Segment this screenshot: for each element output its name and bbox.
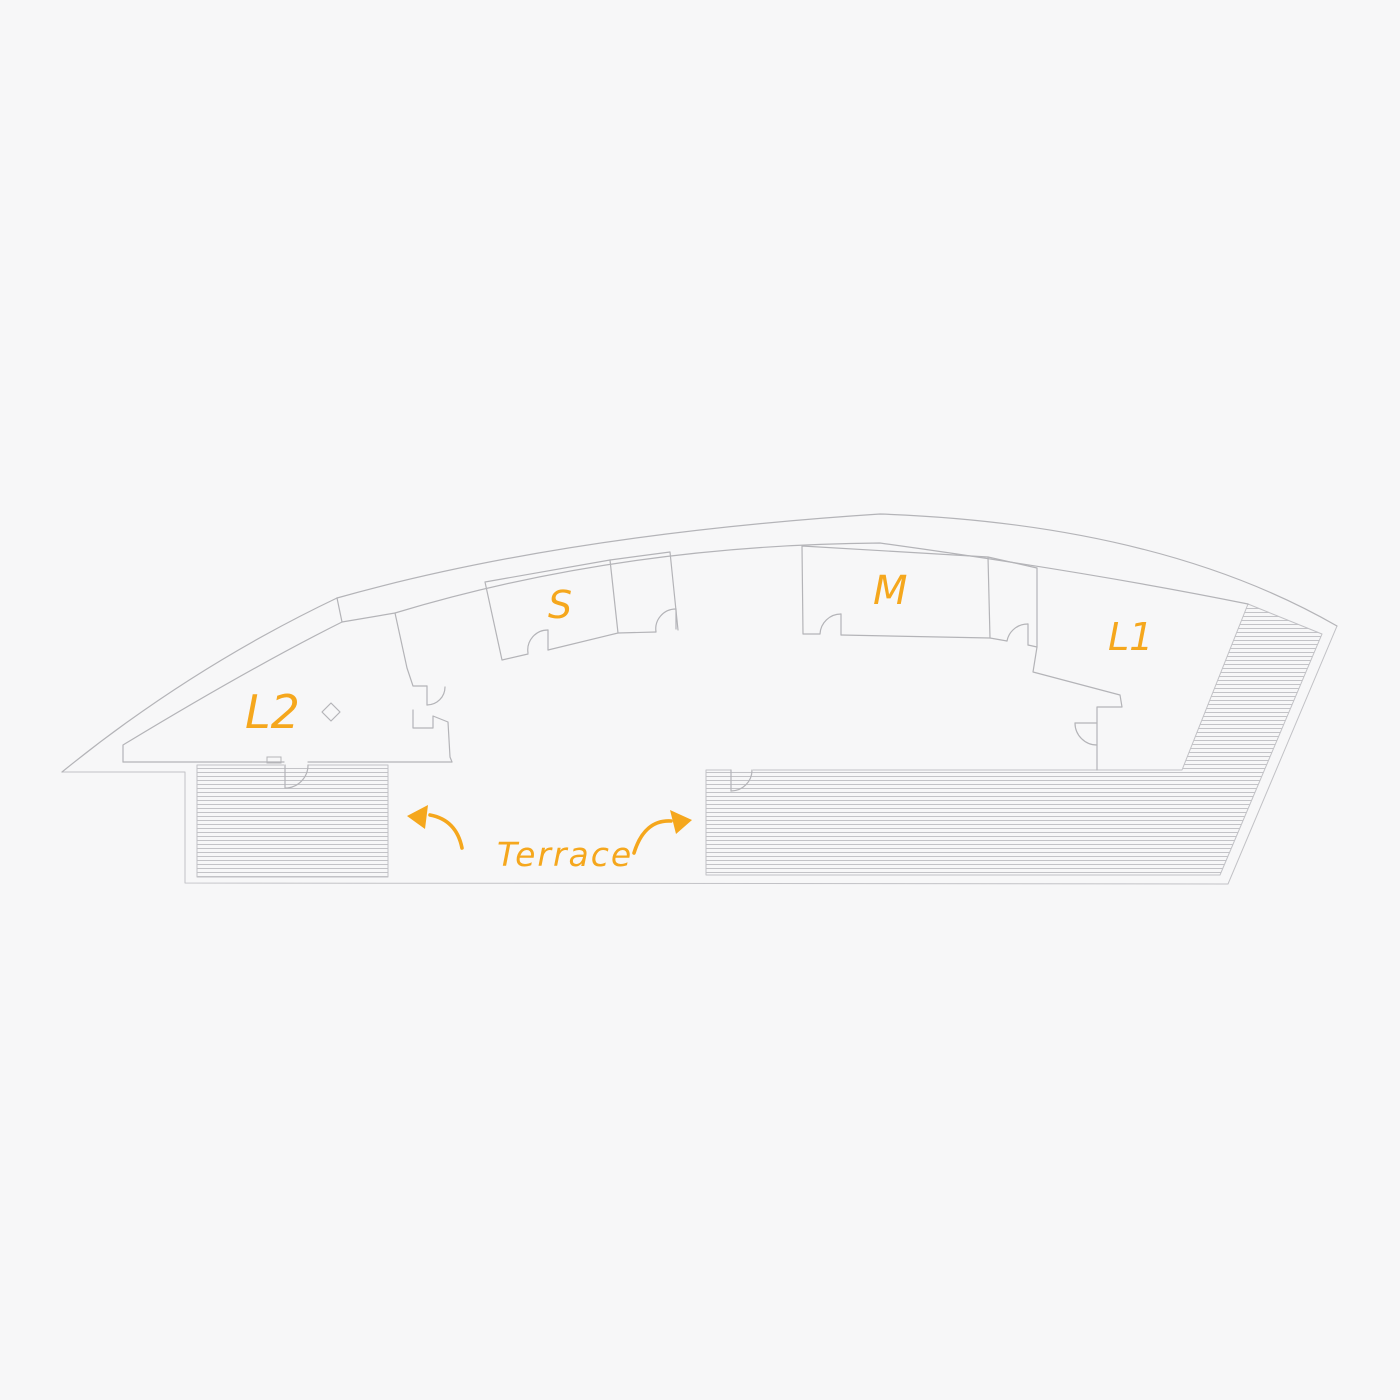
arrow-left-icon [407, 805, 462, 848]
arrow-right-tail [634, 821, 671, 853]
column-diamond [322, 703, 340, 721]
arrow-left-tail [430, 815, 462, 848]
outer-curve-main-arc [337, 514, 1337, 626]
room-l2-east-wall-lower [413, 710, 452, 762]
label-terrace: Terrace [497, 835, 633, 874]
room-s-group [485, 552, 678, 660]
arrow-right-icon [634, 810, 692, 853]
room-s-door-swing-arc [528, 630, 548, 653]
floor-plan-canvas: L2 S M L1 Terrace [0, 0, 1400, 1400]
deck-right [706, 604, 1322, 875]
room-s2-walls [610, 552, 678, 633]
room-m2-door-swing-arc [1007, 624, 1028, 641]
room-l2-east-wall [395, 613, 427, 686]
room-m-door-swing-arc [820, 614, 841, 634]
label-room-s: S [548, 583, 572, 627]
label-room-m: M [873, 568, 908, 614]
room-l1 [1033, 568, 1122, 770]
room-l1-door-swing-arc [1075, 723, 1097, 745]
floor-plan-drawing: L2 S M L1 Terrace [0, 0, 1400, 1400]
room-l1-west-wall [1033, 568, 1122, 770]
deck-right-hatch [706, 604, 1322, 875]
arrow-left-head [407, 805, 428, 829]
label-room-l2: L2 [245, 685, 300, 739]
arrow-right-head [670, 810, 692, 834]
room-s2-door-swing-arc [656, 609, 676, 632]
deck-left-hatch [197, 765, 388, 877]
label-room-l1: L1 [1108, 615, 1153, 659]
facade-step [337, 598, 342, 622]
room-l2-door-swing-arc [427, 687, 445, 705]
room-m2-walls [988, 557, 1037, 647]
deck-left [197, 757, 388, 877]
